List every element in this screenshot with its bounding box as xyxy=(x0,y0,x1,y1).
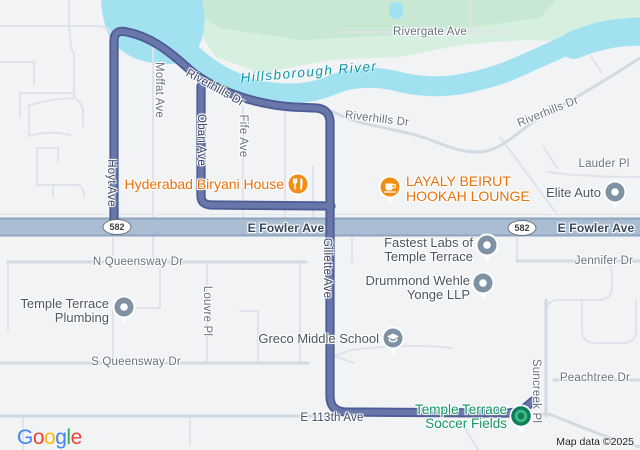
street-label-gillette: Gillette Ave xyxy=(321,238,333,298)
pond xyxy=(389,2,403,19)
cafe-icon xyxy=(377,174,403,206)
street-label-fowler-left: E Fowler Ave xyxy=(248,221,325,235)
logo-letter: o xyxy=(33,426,44,449)
street-label-s-queensway: S Queensway Dr xyxy=(91,356,181,368)
poi-label-fastest-line1: Fastest Labs of xyxy=(384,236,473,250)
street-label-moffat: Moffat Ave xyxy=(153,62,165,118)
park-icon xyxy=(508,403,534,435)
street-label-e113: E 113th Ave xyxy=(300,412,363,424)
poi-label-fastest-line2: Temple Terrace xyxy=(384,250,473,264)
street-label-lauder: Lauder Pl xyxy=(578,158,629,170)
pin-plumbing[interactable] xyxy=(111,294,137,326)
pin-soccer-fields-destination[interactable] xyxy=(508,403,534,435)
generic-poi-icon xyxy=(602,179,628,211)
map-data-attribution: Map data ©2025 xyxy=(556,436,634,448)
map-canvas[interactable]: Rivergate Ave Hillsborough River Riverhi… xyxy=(0,0,640,450)
logo-letter: g xyxy=(55,426,66,449)
generic-poi-icon xyxy=(474,232,500,264)
logo-letter: G xyxy=(17,426,33,449)
poi-label-layaly[interactable]: LAYALY BEIRUT HOOKAH LOUNGE xyxy=(406,174,530,203)
generic-poi-icon xyxy=(111,294,137,326)
pin-layaly[interactable] xyxy=(377,174,403,206)
logo-letter: o xyxy=(44,426,55,449)
poi-label-fastest-labs[interactable]: Fastest Labs of Temple Terrace xyxy=(384,236,473,264)
poi-label-plumbing[interactable]: Temple Terrace Plumbing xyxy=(20,297,109,325)
restaurant-icon xyxy=(285,171,311,203)
highway-shield-582-left: 582 xyxy=(103,219,132,235)
pin-drummond[interactable] xyxy=(470,270,496,302)
street-label-fowler-right: E Fowler Ave xyxy=(558,221,635,235)
street-label-louvre: Louvre Pl xyxy=(201,286,213,336)
poi-label-drummond-line2: Yonge LLP xyxy=(365,288,470,302)
poi-label-soccer-fields[interactable]: Temple Terrace Soccer Fields xyxy=(415,403,507,431)
poi-label-plumbing-line2: Plumbing xyxy=(20,311,109,325)
street-label-hoyt: Hoyt Ave xyxy=(105,159,117,206)
street-label-fife: Fife Ave xyxy=(237,115,249,158)
poi-label-soccer-line2: Soccer Fields xyxy=(415,417,507,431)
street-label-peachtree: Peachtree Dr xyxy=(560,372,630,384)
poi-label-layaly-line2: HOOKAH LOUNGE xyxy=(406,189,530,204)
poi-label-layaly-line1: LAYALY BEIRUT xyxy=(406,174,530,189)
river-band-wide xyxy=(574,32,640,45)
poi-label-greco[interactable]: Greco Middle School xyxy=(258,332,379,346)
school-icon xyxy=(380,325,406,357)
pin-fastest-labs[interactable] xyxy=(474,232,500,264)
generic-poi-icon xyxy=(470,270,496,302)
poi-label-hyderabad[interactable]: Hyderabad Biryani House xyxy=(124,177,284,192)
poi-label-drummond[interactable]: Drummond Wehle Yonge LLP xyxy=(365,274,470,302)
street-label-rivergate: Rivergate Ave xyxy=(393,26,467,38)
pin-greco-school[interactable] xyxy=(380,325,406,357)
poi-label-elite-auto[interactable]: Elite Auto xyxy=(546,186,601,200)
pin-hyderabad[interactable] xyxy=(285,171,311,203)
pin-elite-auto[interactable] xyxy=(602,179,628,211)
poi-label-plumbing-line1: Temple Terrace xyxy=(20,297,109,311)
poi-label-drummond-line1: Drummond Wehle xyxy=(365,274,470,288)
logo-letter: e xyxy=(71,426,82,449)
poi-label-soccer-line1: Temple Terrace xyxy=(415,403,507,417)
google-logo[interactable]: Google xyxy=(17,426,82,450)
street-label-oban: Oban Ave xyxy=(195,114,207,166)
street-label-n-queensway: N Queensway Dr xyxy=(93,256,183,268)
highway-shield-582-right: 582 xyxy=(508,220,537,236)
street-label-jennifer: Jennifer Dr xyxy=(575,255,633,267)
